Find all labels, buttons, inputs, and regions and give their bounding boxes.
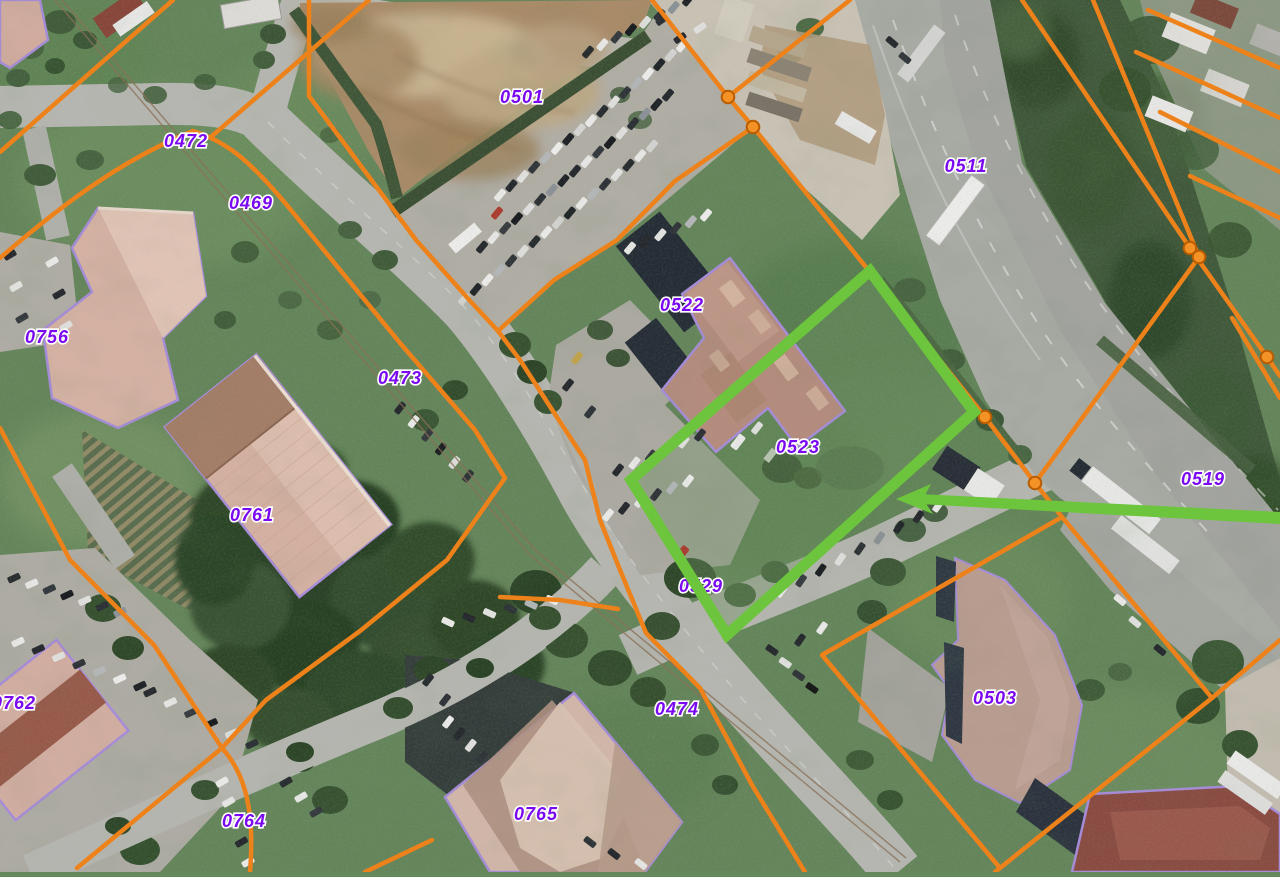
svg-text:0503: 0503 (973, 688, 1017, 708)
svg-text:0501: 0501 (500, 87, 544, 107)
svg-text:0761: 0761 (230, 505, 274, 525)
svg-text:0756: 0756 (25, 327, 69, 347)
svg-text:0474: 0474 (655, 699, 699, 719)
svg-text:0472: 0472 (164, 131, 208, 151)
svg-text:0473: 0473 (378, 368, 422, 388)
svg-text:0522: 0522 (660, 295, 704, 315)
svg-text:0764: 0764 (222, 811, 266, 831)
svg-text:0523: 0523 (776, 437, 820, 457)
svg-text:0762: 0762 (0, 693, 36, 713)
svg-text:0511: 0511 (945, 156, 988, 176)
svg-text:0469: 0469 (229, 193, 273, 213)
svg-text:0519: 0519 (1181, 469, 1225, 489)
svg-text:0765: 0765 (514, 804, 558, 824)
